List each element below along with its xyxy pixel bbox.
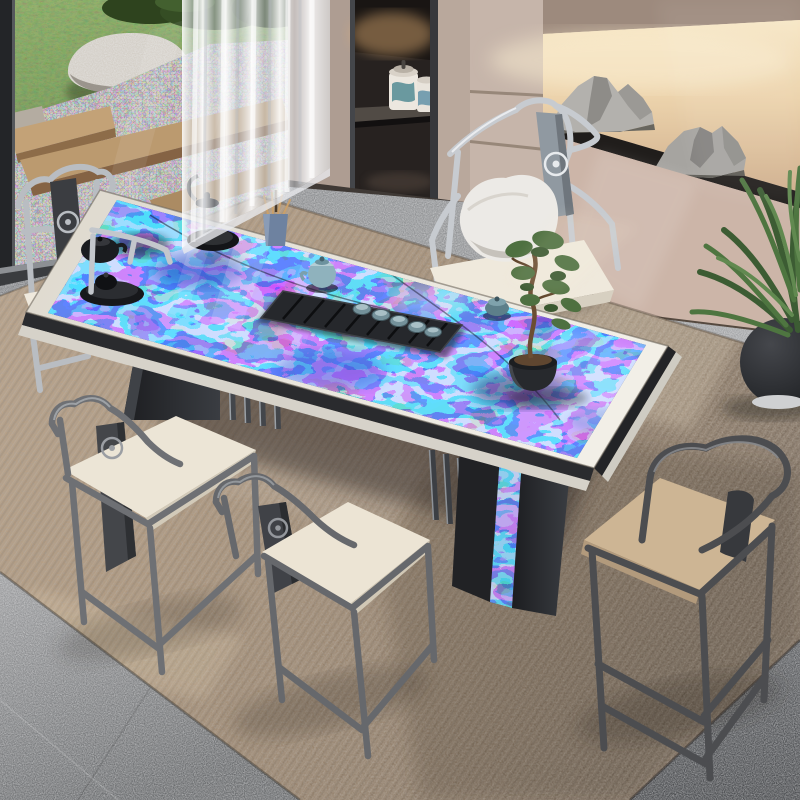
cabinet-frame-edge [430,0,438,208]
tea-room-photo [0,0,800,800]
scene-canvas [0,0,800,800]
cabinet-accent-light [350,12,434,56]
